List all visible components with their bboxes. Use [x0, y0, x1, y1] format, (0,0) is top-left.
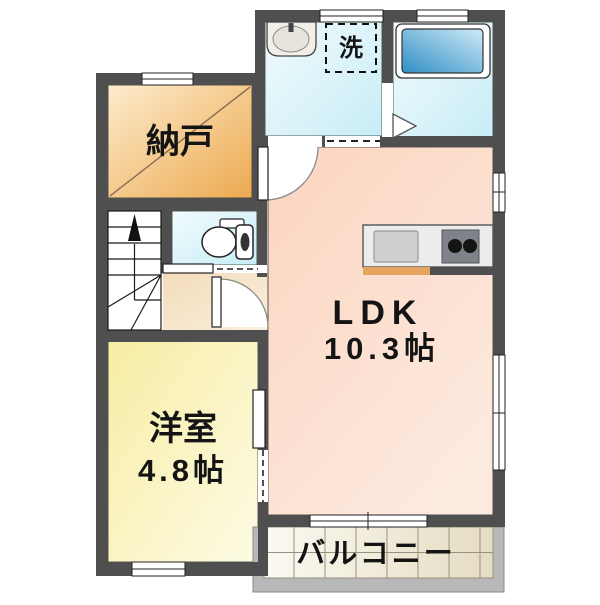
western-room-size-label: 4.8帖: [138, 453, 228, 488]
ldk-size-label: 10.3帖: [324, 331, 440, 366]
counter-edge: [363, 267, 430, 275]
floor-plan-canvas: 納戸 洗 LDK 10.3帖 洋室 4.8帖 バルコニー: [0, 0, 600, 600]
western-room-label: 洋室: [149, 409, 217, 448]
wall-western-top: [96, 330, 268, 342]
toilet-door-panel: [163, 264, 213, 273]
washroom-door-opening: [268, 136, 322, 147]
kitchen-counter-icon: [363, 225, 493, 275]
burner-2: [463, 239, 477, 253]
burner-1: [448, 239, 462, 253]
western-door-panel: [253, 390, 265, 448]
bathtub-icon: [396, 24, 490, 78]
storage-room-label: 納戸: [146, 123, 214, 161]
toilet-sliding-door: [163, 264, 267, 273]
kitchen-sink: [374, 231, 418, 262]
bathroom-door-opening: [382, 83, 393, 137]
washer-space-label: 洗: [339, 35, 363, 62]
balcony-label: バルコニー: [296, 538, 455, 570]
floor-plan-drawing: 納戸 洗 LDK 10.3帖 洋室 4.8帖 バルコニー: [0, 0, 600, 600]
western-room-floor: [108, 340, 258, 562]
faucet: [289, 23, 294, 32]
wall-storage-bottom: [96, 198, 267, 211]
hallway-door-leaf: [212, 277, 221, 327]
washroom-door-leaf: [258, 147, 268, 200]
wall-left: [96, 73, 108, 576]
staircase-icon: [108, 211, 161, 330]
ldk-label: LDK: [333, 294, 424, 332]
vanity-sink-icon: [267, 22, 316, 56]
